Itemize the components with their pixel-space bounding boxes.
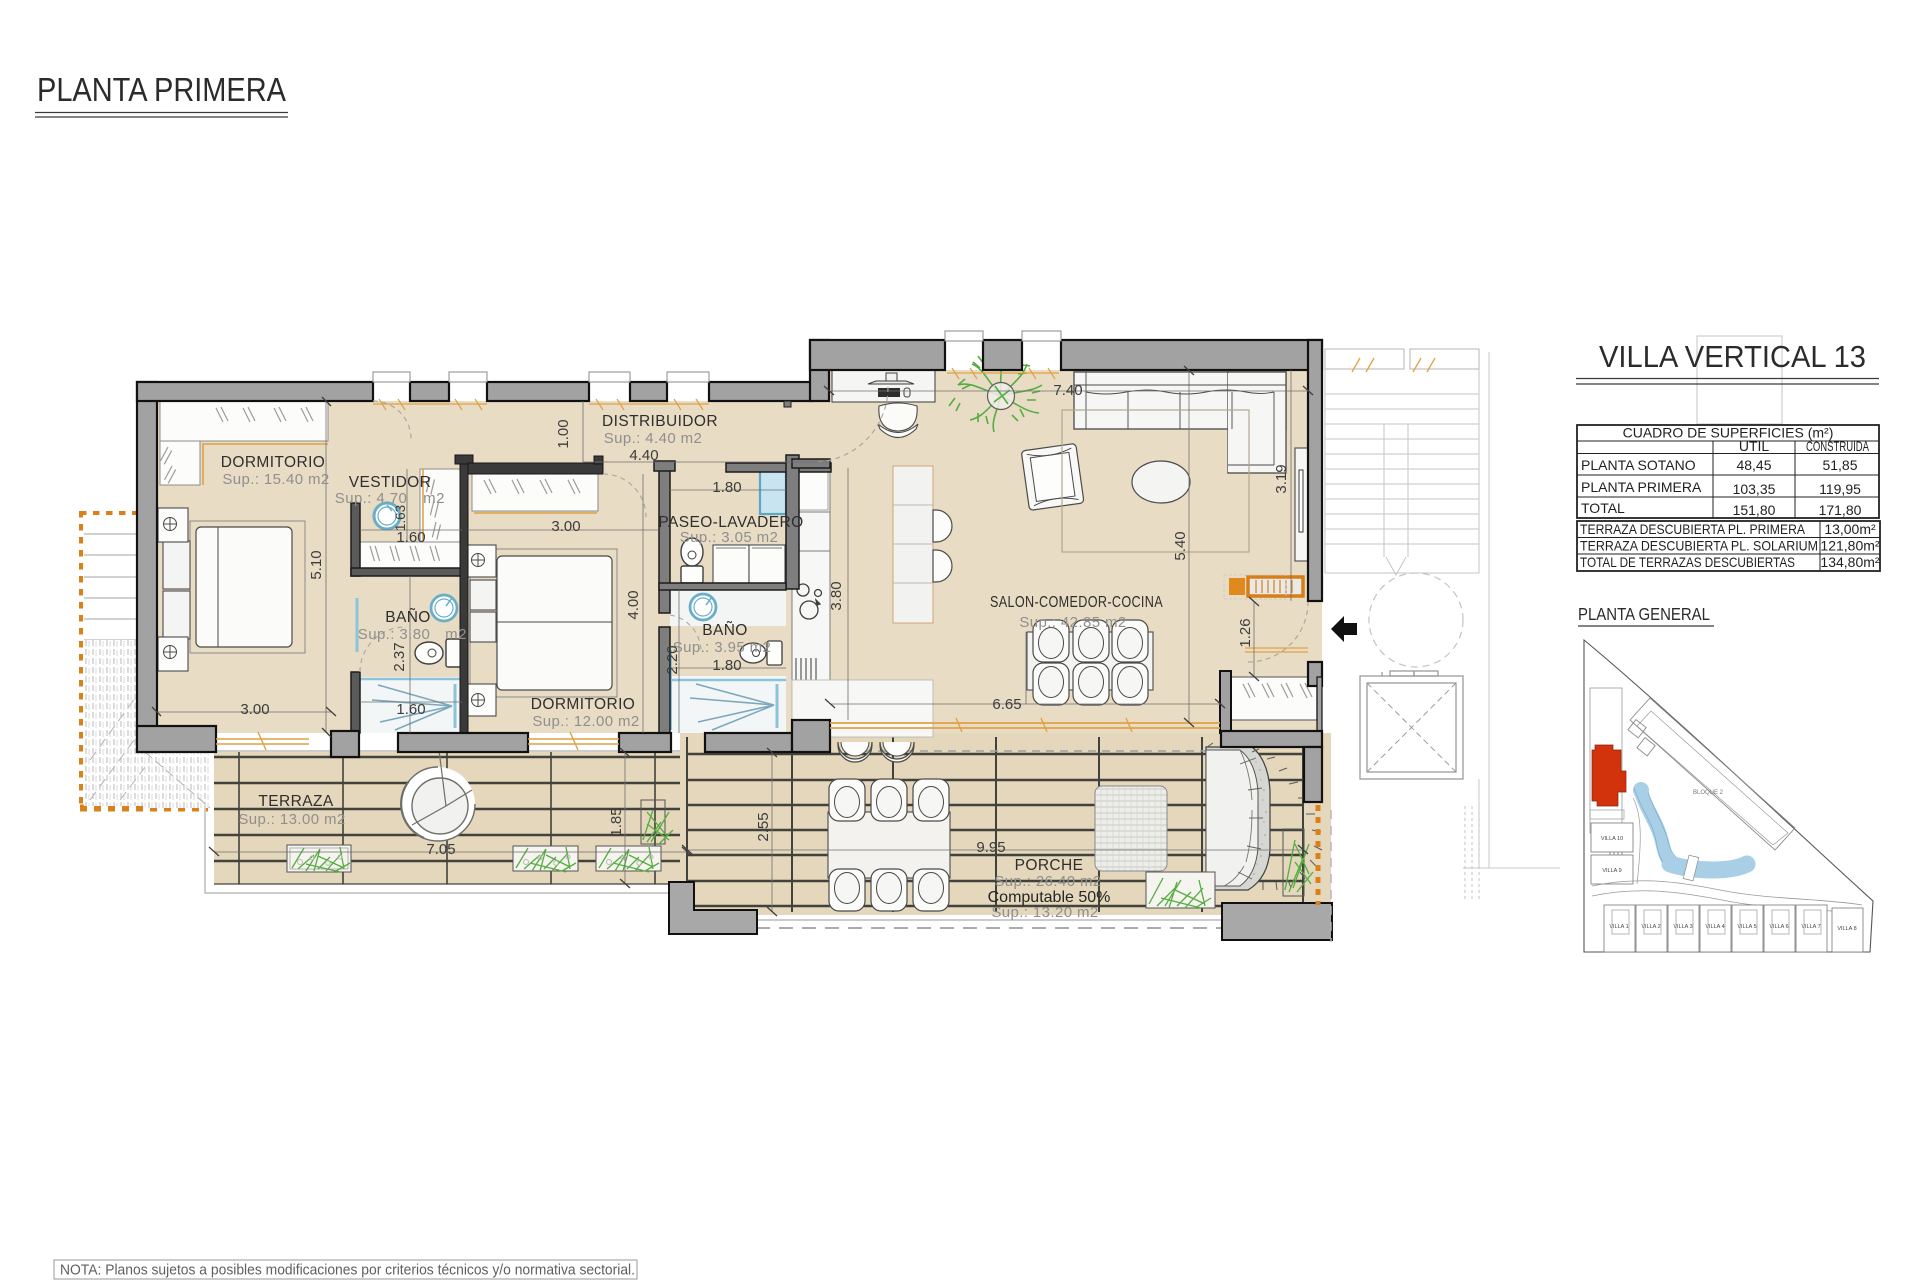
svg-text:Sup.: 26.40 m2: Sup.: 26.40 m2 (994, 873, 1101, 890)
svg-text:121,80m²: 121,80m² (1820, 538, 1879, 554)
svg-text:m2: m2 (423, 490, 445, 507)
svg-text:DORMITORIO: DORMITORIO (531, 696, 635, 713)
svg-text:m2: m2 (445, 626, 467, 643)
svg-text:1.85: 1.85 (608, 807, 625, 836)
svg-text:171,80: 171,80 (1819, 502, 1862, 518)
svg-text:PLANTA PRIMERA: PLANTA PRIMERA (1581, 479, 1702, 495)
svg-text:BAÑO: BAÑO (702, 622, 748, 639)
svg-text:2.20: 2.20 (664, 645, 681, 674)
svg-text:134,80m²: 134,80m² (1820, 554, 1879, 570)
svg-text:1.26: 1.26 (1237, 618, 1254, 647)
svg-text:TERRAZA DESCUBIERTA PL. PRIMER: TERRAZA DESCUBIERTA PL. PRIMERA (1580, 521, 1806, 537)
svg-text:Sup.: 4.70: Sup.: 4.70 (335, 490, 407, 507)
svg-text:DORMITORIO: DORMITORIO (221, 454, 325, 471)
svg-text:SALON-COMEDOR-COCINA: SALON-COMEDOR-COCINA (990, 594, 1163, 611)
svg-text:PORCHE: PORCHE (1015, 857, 1084, 874)
svg-text:CONSTRUIDA: CONSTRUIDA (1806, 438, 1869, 454)
svg-text:6.65: 6.65 (992, 696, 1021, 713)
svg-text:VILLA VERTICAL 13: VILLA VERTICAL 13 (1599, 339, 1866, 374)
svg-text:TOTAL: TOTAL (1581, 500, 1625, 516)
svg-text:2.55: 2.55 (755, 812, 772, 841)
svg-text:VILLA 10: VILLA 10 (1601, 836, 1623, 842)
svg-text:Sup.: 3.80: Sup.: 3.80 (358, 626, 430, 643)
svg-text:PLANTA GENERAL: PLANTA GENERAL (1578, 604, 1710, 624)
svg-text:TERRAZA DESCUBIERTA PL. SOLARI: TERRAZA DESCUBIERTA PL. SOLARIUM (1580, 538, 1818, 554)
svg-text:1.60: 1.60 (396, 701, 425, 718)
svg-text:VILLA 8: VILLA 8 (1837, 926, 1856, 932)
svg-text:BAÑO: BAÑO (385, 609, 431, 626)
svg-text:Sup.: 13.00 m2: Sup.: 13.00 m2 (238, 811, 345, 828)
svg-text:3.19: 3.19 (1273, 464, 1290, 493)
svg-text:Sup.: 15.40 m2: Sup.: 15.40 m2 (222, 471, 329, 488)
svg-text:3.00: 3.00 (551, 518, 580, 535)
svg-text:151,80: 151,80 (1733, 502, 1776, 518)
svg-text:9.95: 9.95 (976, 839, 1005, 856)
svg-text:2.37: 2.37 (391, 642, 408, 671)
svg-text:Sup.: 13.20 m2: Sup.: 13.20 m2 (991, 904, 1098, 921)
svg-text:4.00: 4.00 (625, 590, 642, 619)
svg-text:PLANTA PRIMERA: PLANTA PRIMERA (37, 71, 286, 108)
svg-text:1.00: 1.00 (555, 419, 572, 448)
svg-text:13,00m²: 13,00m² (1824, 521, 1876, 537)
svg-text:Sup.: 12.00 m2: Sup.: 12.00 m2 (532, 713, 639, 730)
svg-text:1.80: 1.80 (712, 657, 741, 674)
svg-text:UTIL: UTIL (1739, 438, 1770, 454)
svg-text:3.00: 3.00 (240, 701, 269, 718)
svg-text:DISTRIBUIDOR: DISTRIBUIDOR (602, 413, 718, 430)
svg-text:VILLA 9: VILLA 9 (1602, 868, 1621, 874)
svg-text:48,45: 48,45 (1736, 457, 1771, 473)
svg-text:PLANTA SOTANO: PLANTA SOTANO (1581, 457, 1696, 473)
svg-text:5.10: 5.10 (308, 550, 325, 579)
svg-text:TOTAL DE TERRAZAS DESCUBIERTAS: TOTAL DE TERRAZAS DESCUBIERTAS (1580, 554, 1795, 570)
svg-text:1.80: 1.80 (712, 479, 741, 496)
svg-text:CUADRO DE SUPERFICIES (m²): CUADRO DE SUPERFICIES (m²) (1623, 425, 1834, 441)
svg-text:1.63: 1.63 (393, 505, 408, 531)
svg-text:7.05: 7.05 (426, 841, 455, 858)
svg-text:NOTA: Planos sujetos a posible: NOTA: Planos sujetos a posibles modifica… (60, 1262, 635, 1279)
svg-text:4.40: 4.40 (629, 447, 658, 464)
svg-text:103,35: 103,35 (1733, 481, 1776, 497)
svg-text:1.60: 1.60 (396, 529, 425, 546)
svg-text:Sup.: 42.85 m2: Sup.: 42.85 m2 (1019, 614, 1126, 631)
svg-text:BLOQUE 2: BLOQUE 2 (1693, 790, 1724, 796)
svg-text:119,95: 119,95 (1819, 481, 1861, 497)
svg-text:51,85: 51,85 (1822, 457, 1857, 473)
svg-text:3.80: 3.80 (828, 581, 845, 610)
svg-text:Sup.: 3.95 m2: Sup.: 3.95 m2 (673, 639, 772, 656)
svg-text:Sup.: 3.05 m2: Sup.: 3.05 m2 (680, 529, 779, 546)
svg-text:7.40: 7.40 (1053, 382, 1082, 399)
svg-text:TERRAZA: TERRAZA (258, 793, 333, 810)
svg-text:VESTIDOR: VESTIDOR (349, 474, 431, 491)
svg-text:Sup.: 4.40 m2: Sup.: 4.40 m2 (604, 430, 703, 447)
svg-text:5.40: 5.40 (1172, 531, 1189, 560)
